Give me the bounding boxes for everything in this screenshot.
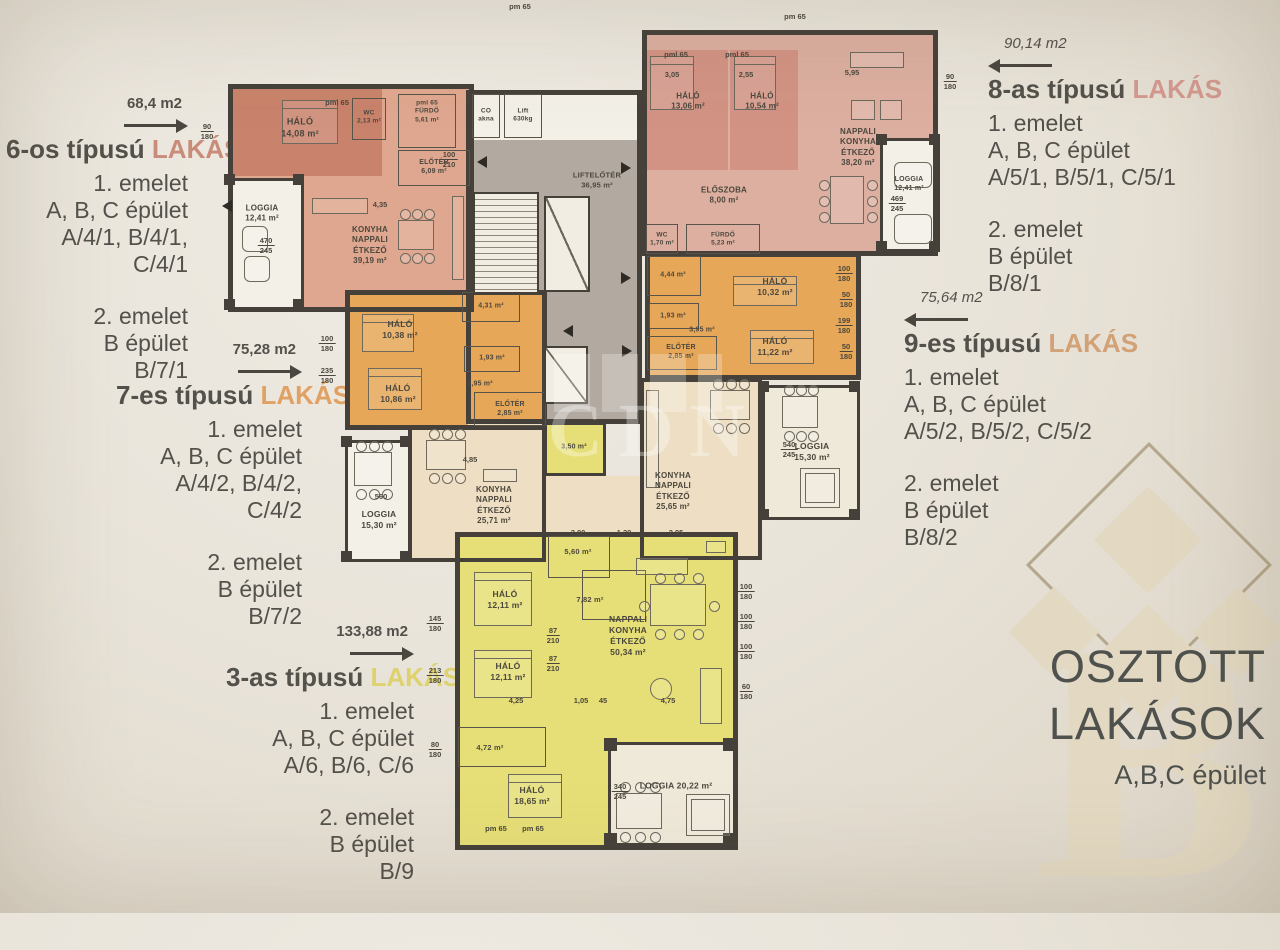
dimension-label: 3,05 <box>665 70 680 79</box>
dimension-label: 560 <box>375 492 388 501</box>
wall-corner-block <box>849 381 860 392</box>
dimension-label: 50180 <box>840 290 853 310</box>
room-label: HÁLÓ 11,22 m² <box>757 336 792 358</box>
dimension-label: 87210 <box>547 654 560 674</box>
wall-corner-block <box>400 436 411 447</box>
dimension-label: 90180 <box>944 72 957 92</box>
room-label: WC 1,70 m² <box>650 232 674 249</box>
room-label: HÁLÓ 14,08 m² <box>281 116 319 139</box>
furniture-rect <box>850 52 904 68</box>
page-title-line2: LAKÁSOK <box>1049 695 1266 752</box>
wall-corner-block <box>224 174 235 185</box>
dimension-label: 4,85 <box>463 455 478 464</box>
page-title: OSZTOTT LAKÁSOK A,B,C épület <box>1049 638 1266 791</box>
room-label: HÁLÓ 12,11 m² <box>490 661 525 683</box>
room-fill <box>546 476 640 534</box>
room-label: 3,95 m² <box>467 379 493 388</box>
dimension-label: 100180 <box>836 264 853 284</box>
wall-corner-block <box>876 241 887 252</box>
furniture-rect <box>636 558 688 575</box>
room-label: WC 2,13 m² <box>357 110 381 127</box>
dimension-label: pml 65 <box>325 98 349 107</box>
wall-corner-block <box>723 738 736 751</box>
room-label: ELŐTÉR 2,85 m² <box>495 400 525 418</box>
furniture-table6 <box>426 440 466 470</box>
dimension-label: 87210 <box>547 626 560 646</box>
wall-corner-block <box>400 551 411 562</box>
dimension-label: pm 65 <box>784 12 806 21</box>
page-title-line1: OSZTOTT <box>1049 638 1266 695</box>
wall-corner-block <box>293 299 304 310</box>
room-label: LOGGIA 12,41 m² <box>245 204 279 225</box>
dimension-label: 45 <box>599 696 607 705</box>
dimension-label: 4,35 <box>373 200 388 209</box>
entrance-arrow-right-icon <box>621 162 631 174</box>
furniture-table6 <box>830 176 864 224</box>
dimension-label: 100210 <box>441 150 458 170</box>
entrance-arrow-right-icon <box>621 272 631 284</box>
room-label: NAPPALI KONYHA ÉTKEZŐ 38,20 m² <box>840 127 876 169</box>
dimension-label: 100180 <box>738 582 755 602</box>
wall-corner-block <box>293 174 304 185</box>
room-label: 1,93 m² <box>479 353 505 362</box>
room-label: HÁLÓ 12,11 m² <box>487 589 522 611</box>
furniture-rect <box>700 668 722 724</box>
room-label: pml 65 FÜRDŐ 5,61 m² <box>415 99 439 124</box>
room-label: HÁLÓ 10,32 m² <box>757 276 793 298</box>
room-label: HÁLÓ 10,86 m² <box>380 383 416 405</box>
dimension-label: 100180 <box>738 612 755 632</box>
wall-corner-block <box>224 299 235 310</box>
dimension-label: 90180 <box>201 122 214 142</box>
room-label: Lift 630kg <box>513 108 532 125</box>
room-label: LOGGIA 12,41 m² <box>894 175 924 193</box>
center-watermark: CDN <box>548 388 761 475</box>
dimension-label: 1,20 <box>617 528 632 537</box>
page-subtitle: A,B,C épület <box>1049 760 1266 791</box>
wall-corner-block <box>876 134 887 145</box>
entrance-arrow-left-icon <box>563 325 573 337</box>
furniture-round <box>894 214 932 244</box>
dimension-label: pml 65 <box>725 50 749 59</box>
room-label: FÜRDŐ 5,23 m² <box>711 232 735 249</box>
wall-corner-block <box>758 509 769 520</box>
room-label: LOGGIA 15,30 m² <box>794 441 830 463</box>
dimension-label: 2,00 <box>571 528 586 537</box>
room-label: HÁLÓ 10,38 m² <box>382 319 418 341</box>
furniture-table6 <box>354 452 392 486</box>
room-label: NAPPALI KONYHA ÉTKEZŐ 50,34 m² <box>609 614 647 658</box>
dimension-label: pm 65 <box>485 824 507 833</box>
room-label: 4,44 m² <box>660 270 686 279</box>
elevator-shaft <box>544 196 590 292</box>
dimension-label: 4,25 <box>509 696 524 705</box>
room-label: CO akna <box>478 108 494 125</box>
room-label: HÁLÓ 10,54 m² <box>745 92 779 113</box>
dimension-label: 100180 <box>738 642 755 662</box>
dimension-label: pml 65 <box>664 50 688 59</box>
furniture-round <box>244 256 270 282</box>
room-label: KONYHA NAPPALI ÉTKEZŐ 25,65 m² <box>655 471 691 513</box>
wall-corner-block <box>341 436 352 447</box>
room-label: 5,60 m² <box>564 547 591 557</box>
wall-corner-block <box>604 738 617 751</box>
staircase <box>473 192 539 294</box>
furniture-rect <box>851 100 875 120</box>
furniture-tub <box>800 468 840 508</box>
dimension-label: 4,75 <box>661 696 676 705</box>
furniture-rect <box>312 198 368 214</box>
wall-corner-block <box>341 551 352 562</box>
room-label: HÁLÓ 18,65 m² <box>514 785 550 807</box>
furniture-rect <box>706 541 726 553</box>
room-label: ELŐSZOBA 8,00 m² <box>701 186 747 207</box>
dimension-label: 2,95 <box>669 528 684 537</box>
dimension-label: 213180 <box>427 666 444 686</box>
furniture-table6 <box>782 396 818 428</box>
furniture-rect <box>483 469 517 482</box>
room-label: 7,82 m² <box>576 595 603 605</box>
furniture-rect <box>880 100 902 120</box>
dimension-label: 50180 <box>840 342 853 362</box>
room-label: KONYHA NAPPALI ÉTKEZŐ 39,19 m² <box>352 225 388 267</box>
room-label: LIFTELŐTÉR 36,95 m² <box>573 170 621 190</box>
wall-corner-block <box>604 833 617 846</box>
furniture-rect <box>452 196 464 280</box>
dimension-label: 199180 <box>836 316 853 336</box>
dimension-label: 145180 <box>427 614 444 634</box>
dimension-label: 5,95 <box>845 68 860 77</box>
entrance-arrow-left-icon <box>222 200 232 212</box>
room-label: HÁLÓ 13,06 m² <box>671 92 705 113</box>
dimension-label: 1,05 <box>574 696 589 705</box>
room-label: 1,93 m² <box>660 311 686 320</box>
room-label: 4,31 m² <box>478 301 504 310</box>
dimension-label: 469245 <box>889 194 906 214</box>
room-label: KONYHA NAPPALI ÉTKEZŐ 25,71 m² <box>476 485 512 527</box>
dimension-label: 235180 <box>319 366 336 386</box>
dimension-label: 470245 <box>258 236 275 256</box>
dimension-label: pm 65 <box>509 2 531 11</box>
dimension-label: 100180 <box>319 334 336 354</box>
wall-corner-block <box>849 509 860 520</box>
dimension-label: 80180 <box>429 740 442 760</box>
room-label: 4,72 m² <box>476 743 503 753</box>
dimension-label: pm 65 <box>522 824 544 833</box>
dimension-label: 2,55 <box>739 70 754 79</box>
furniture-table8 <box>650 584 706 626</box>
room-label: 3,95 m² <box>689 325 715 334</box>
room-label: LOGGIA 15,30 m² <box>361 509 397 531</box>
room-label: LOGGIA 20,22 m² <box>640 780 713 791</box>
furniture-table6 <box>398 220 434 250</box>
dimension-label: 540245 <box>781 440 798 460</box>
furniture-tub <box>686 794 730 836</box>
entrance-arrow-left-icon <box>477 156 487 168</box>
dimension-label: 340245 <box>612 782 629 802</box>
dimension-label: 60180 <box>740 682 753 702</box>
wall-corner-block <box>929 241 940 252</box>
wall-corner-block <box>929 134 940 145</box>
